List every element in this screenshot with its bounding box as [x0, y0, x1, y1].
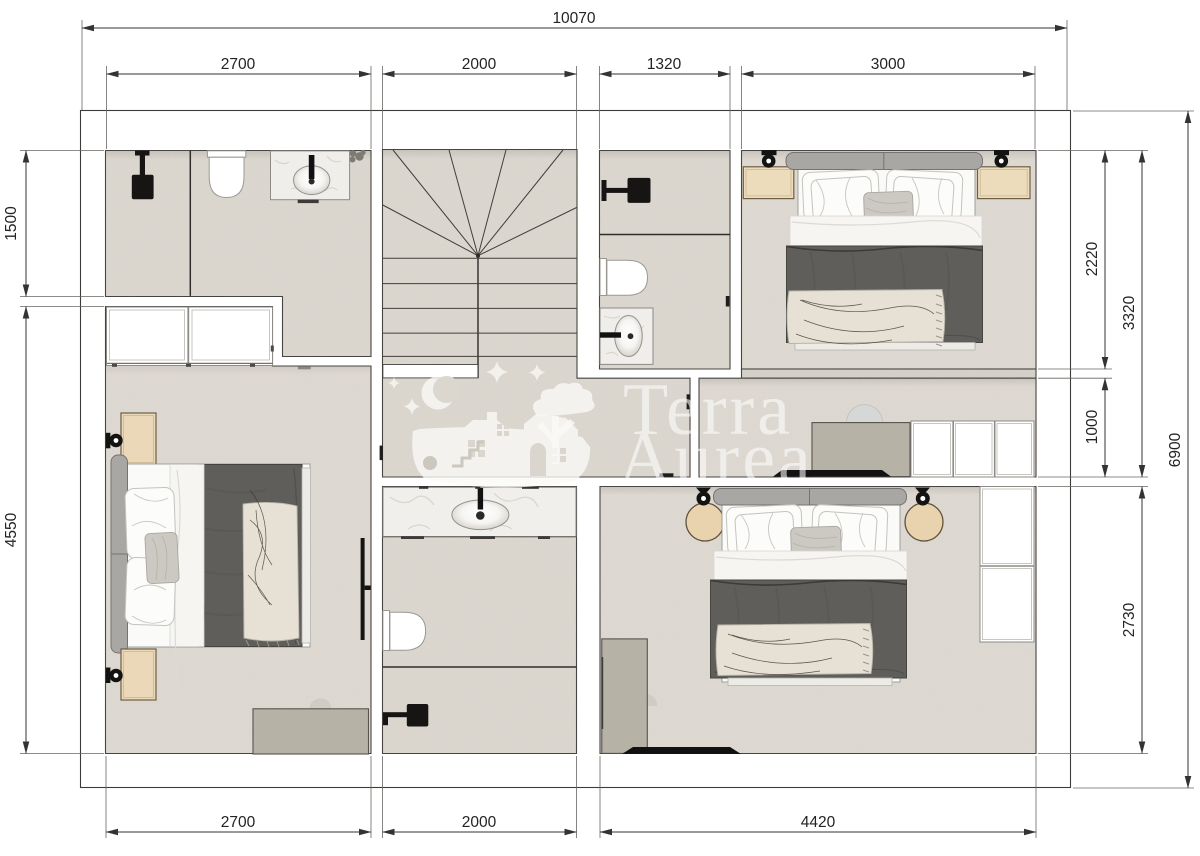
svg-text:3320: 3320: [1121, 295, 1138, 330]
svg-text:2700: 2700: [221, 56, 256, 73]
svg-text:2730: 2730: [1121, 602, 1138, 637]
svg-text:2000: 2000: [462, 814, 497, 831]
svg-text:4550: 4550: [3, 512, 20, 547]
svg-text:1000: 1000: [1084, 409, 1101, 444]
svg-text:2700: 2700: [221, 814, 256, 831]
svg-text:1500: 1500: [3, 206, 20, 241]
svg-text:2220: 2220: [1084, 241, 1101, 276]
svg-text:2000: 2000: [462, 56, 497, 73]
svg-text:4420: 4420: [801, 814, 836, 831]
svg-text:3000: 3000: [871, 56, 906, 73]
svg-text:10070: 10070: [552, 10, 595, 27]
svg-text:1320: 1320: [647, 56, 682, 73]
svg-text:6900: 6900: [1167, 432, 1184, 467]
svg-text:Aurea: Aurea: [618, 418, 814, 500]
